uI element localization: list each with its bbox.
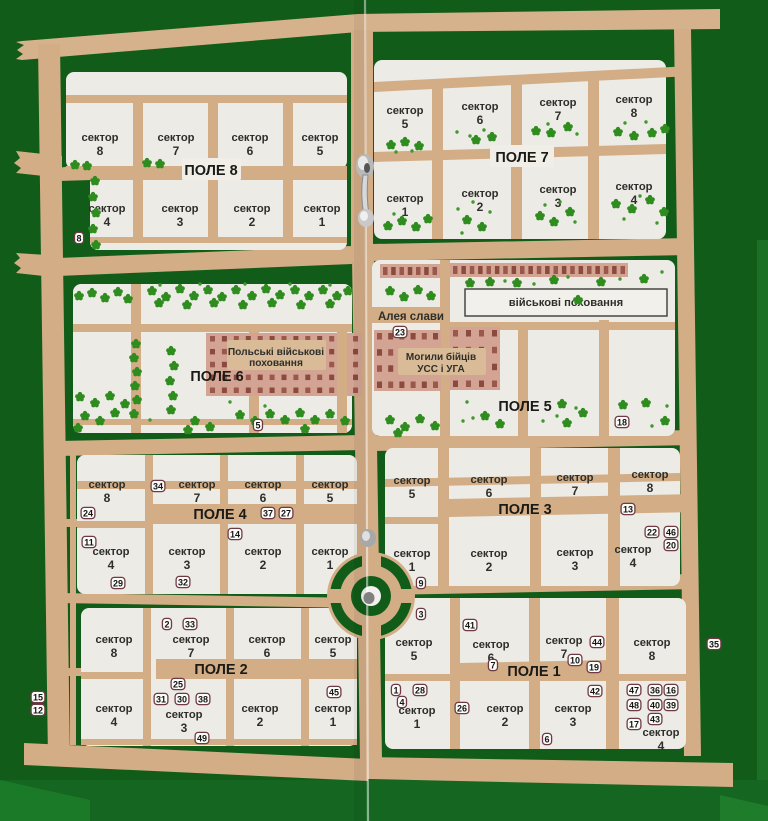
svg-text:ПОЛЕ 6: ПОЛЕ 6 [190,369,243,385]
svg-text:45: 45 [329,687,339,697]
svg-text:сектор: сектор [545,635,582,647]
svg-text:5: 5 [255,420,260,430]
svg-text:сектор: сектор [311,479,348,491]
svg-text:сектор: сектор [393,475,430,487]
svg-text:сектор: сектор [248,634,285,646]
svg-text:сектор: сектор [81,132,118,144]
svg-text:військові поховання: військові поховання [509,297,623,309]
svg-text:42: 42 [590,686,600,696]
svg-text:2: 2 [502,715,509,729]
svg-text:4: 4 [108,558,115,572]
svg-text:1: 1 [327,558,334,572]
svg-text:сектор: сектор [244,546,281,558]
svg-text:33: 33 [185,619,195,629]
svg-text:6: 6 [247,144,254,158]
svg-text:сектор: сектор [615,181,652,193]
svg-text:сектор: сектор [92,546,129,558]
svg-text:4: 4 [630,556,637,570]
svg-text:ПОЛЕ 3: ПОЛЕ 3 [498,502,551,518]
svg-text:13: 13 [623,504,633,514]
svg-text:сектор: сектор [386,193,423,205]
svg-text:сектор: сектор [395,637,432,649]
svg-text:сектор: сектор [556,547,593,559]
svg-text:поховання: поховання [249,358,303,369]
svg-text:12: 12 [33,705,43,715]
svg-text:1: 1 [409,560,416,574]
svg-text:37: 37 [263,508,273,518]
svg-text:7: 7 [194,491,201,505]
svg-text:сектор: сектор [461,188,498,200]
svg-text:сектор: сектор [554,703,591,715]
svg-text:3: 3 [572,559,579,573]
svg-text:ПОЛЕ 1: ПОЛЕ 1 [507,664,560,680]
svg-text:сектор: сектор [241,703,278,715]
svg-text:8: 8 [104,491,111,505]
svg-text:сектор: сектор [303,203,340,215]
svg-text:ПОЛЕ 4: ПОЛЕ 4 [193,507,246,523]
svg-text:ПОЛЕ 7: ПОЛЕ 7 [495,150,548,166]
svg-text:34: 34 [153,481,163,491]
svg-text:3: 3 [177,215,184,229]
svg-text:2: 2 [477,200,484,214]
svg-text:46: 46 [666,527,676,537]
svg-text:сектор: сектор [88,479,125,491]
svg-text:8: 8 [111,646,118,660]
svg-text:6: 6 [477,113,484,127]
svg-text:47: 47 [629,685,639,695]
svg-text:сектор: сектор [314,703,351,715]
svg-text:8: 8 [631,106,638,120]
svg-text:2: 2 [249,215,256,229]
svg-text:6: 6 [486,486,493,500]
svg-text:8: 8 [647,481,654,495]
svg-text:сектор: сектор [472,639,509,651]
svg-text:1: 1 [330,715,337,729]
svg-text:26: 26 [457,703,467,713]
svg-text:2: 2 [260,558,267,572]
svg-text:30: 30 [177,694,187,704]
svg-text:4: 4 [658,739,665,753]
svg-text:39: 39 [666,700,676,710]
svg-text:22: 22 [647,527,657,537]
svg-text:25: 25 [173,679,183,689]
svg-text:32: 32 [178,577,188,587]
svg-text:сектор: сектор [168,546,205,558]
svg-text:36: 36 [650,685,660,695]
svg-text:Алея слави: Алея слави [378,311,444,323]
svg-text:8: 8 [76,233,81,243]
svg-text:сектор: сектор [157,132,194,144]
svg-text:сектор: сектор [614,544,651,556]
svg-text:7: 7 [555,109,562,123]
svg-text:4: 4 [104,215,111,229]
svg-text:41: 41 [465,620,475,630]
svg-text:35: 35 [709,639,719,649]
svg-text:43: 43 [650,714,660,724]
svg-text:сектор: сектор [393,548,430,560]
svg-text:5: 5 [411,649,418,663]
svg-text:5: 5 [402,117,409,131]
svg-text:31: 31 [156,694,166,704]
svg-text:28: 28 [415,685,425,695]
svg-text:2: 2 [257,715,264,729]
svg-text:14: 14 [230,529,240,539]
svg-text:3: 3 [181,721,188,735]
svg-text:10: 10 [570,655,580,665]
svg-text:48: 48 [629,700,639,710]
svg-text:29: 29 [113,578,123,588]
svg-text:2: 2 [486,560,493,574]
svg-text:сектор: сектор [486,703,523,715]
svg-text:7: 7 [490,660,495,670]
svg-text:сектор: сектор [244,479,281,491]
svg-text:сектор: сектор [386,105,423,117]
svg-text:сектор: сектор [470,474,507,486]
svg-text:1: 1 [393,685,398,695]
svg-text:сектор: сектор [470,548,507,560]
svg-text:5: 5 [330,646,337,660]
svg-text:5: 5 [317,144,324,158]
svg-text:3: 3 [570,715,577,729]
svg-text:7: 7 [188,646,195,660]
svg-text:44: 44 [592,637,602,647]
svg-text:сектор: сектор [631,469,668,481]
svg-text:сектор: сектор [556,472,593,484]
svg-text:6: 6 [544,734,549,744]
svg-text:сектор: сектор [461,101,498,113]
svg-text:сектор: сектор [172,634,209,646]
svg-text:16: 16 [666,685,676,695]
svg-text:49: 49 [197,733,207,743]
svg-text:19: 19 [589,662,599,672]
svg-text:3: 3 [184,558,191,572]
svg-text:24: 24 [83,508,93,518]
svg-text:20: 20 [666,540,676,550]
svg-text:17: 17 [629,719,639,729]
svg-text:7: 7 [173,144,180,158]
svg-text:сектор: сектор [165,709,202,721]
svg-text:сектор: сектор [311,546,348,558]
svg-text:6: 6 [264,646,271,660]
svg-text:2: 2 [164,619,169,629]
svg-text:сектор: сектор [314,634,351,646]
svg-text:18: 18 [617,417,627,427]
svg-text:сектор: сектор [539,184,576,196]
svg-text:38: 38 [198,694,208,704]
svg-text:сектор: сектор [161,203,198,215]
svg-text:7: 7 [561,647,568,661]
svg-text:6: 6 [260,491,267,505]
svg-text:ПОЛЕ 2: ПОЛЕ 2 [194,662,247,678]
svg-text:11: 11 [84,537,94,547]
svg-text:7: 7 [572,484,579,498]
svg-text:5: 5 [327,491,334,505]
svg-text:15: 15 [33,692,43,702]
svg-text:9: 9 [418,578,423,588]
svg-text:40: 40 [650,700,660,710]
svg-text:8: 8 [649,649,656,663]
svg-text:сектор: сектор [95,634,132,646]
svg-text:сектор: сектор [615,94,652,106]
svg-text:сектор: сектор [633,637,670,649]
svg-text:ПОЛЕ 5: ПОЛЕ 5 [498,399,551,415]
svg-text:сектор: сектор [642,727,679,739]
svg-text:Могили бійців: Могили бійців [406,351,476,363]
svg-text:1: 1 [319,215,326,229]
svg-text:3: 3 [418,609,423,619]
svg-text:сектор: сектор [539,97,576,109]
svg-text:4: 4 [111,715,118,729]
svg-text:сектор: сектор [233,203,270,215]
svg-text:5: 5 [409,487,416,501]
svg-text:4: 4 [399,697,404,707]
svg-text:сектор: сектор [231,132,268,144]
svg-text:1: 1 [414,717,421,731]
svg-text:сектор: сектор [178,479,215,491]
svg-text:Польські військові: Польські військові [228,347,324,358]
svg-text:УСС і УГА: УСС і УГА [417,364,464,375]
svg-text:сектор: сектор [301,132,338,144]
svg-text:8: 8 [97,144,104,158]
svg-text:ПОЛЕ 8: ПОЛЕ 8 [184,163,237,179]
svg-text:27: 27 [281,508,291,518]
svg-text:23: 23 [395,327,405,337]
svg-text:сектор: сектор [95,703,132,715]
